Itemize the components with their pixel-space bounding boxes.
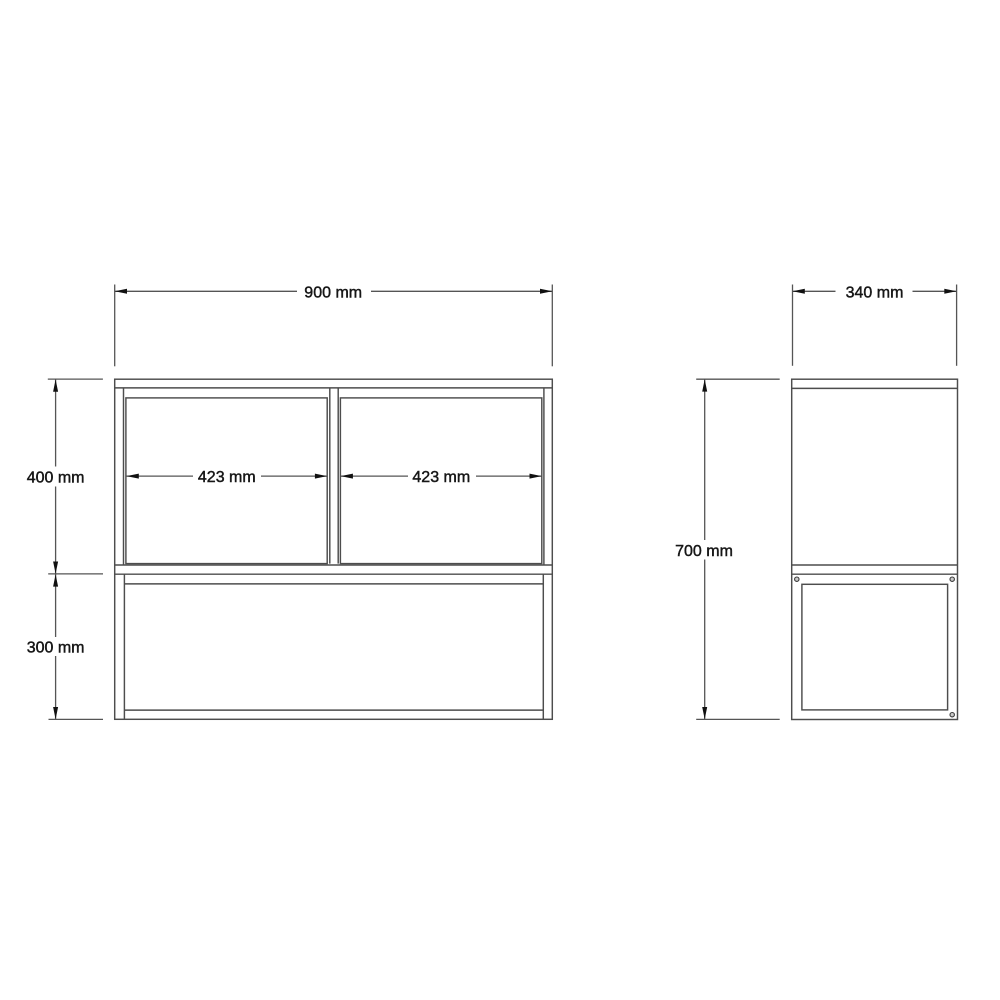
svg-text:700 mm: 700 mm bbox=[675, 543, 733, 560]
svg-text:400 mm: 400 mm bbox=[27, 469, 85, 486]
svg-text:340 mm: 340 mm bbox=[846, 284, 904, 301]
svg-text:423 mm: 423 mm bbox=[198, 469, 256, 486]
svg-text:300 mm: 300 mm bbox=[27, 640, 85, 657]
svg-text:900 mm: 900 mm bbox=[304, 284, 362, 301]
svg-text:423 mm: 423 mm bbox=[412, 469, 470, 486]
